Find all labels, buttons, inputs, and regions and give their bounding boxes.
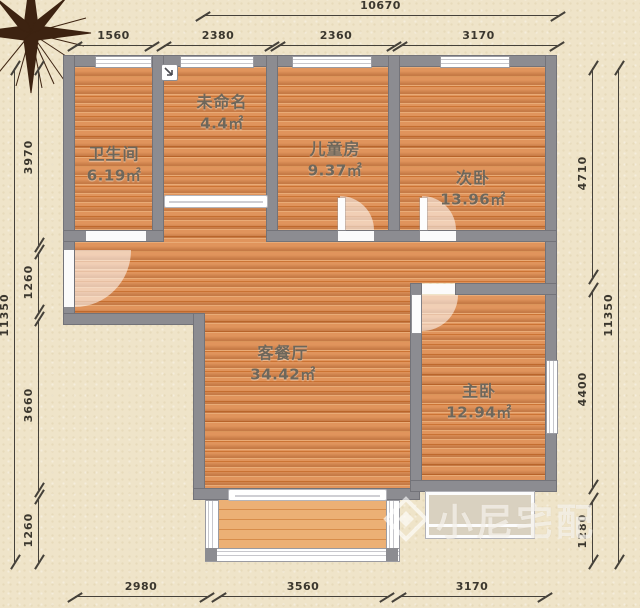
dim-label: 2980 [125,580,158,593]
wall-living-left [193,313,205,500]
room-area: 4.4㎡ [196,114,247,136]
dim-top-seg-1: 1560 [75,45,152,46]
window-master-right [546,360,558,434]
balcony-sliding-door [228,489,387,501]
dim-bottom-seg-3: 3170 [399,596,545,597]
room-name: 未命名 [196,91,247,114]
dim-label: 4710 [576,155,589,190]
dim-bottom-seg-2: 3560 [219,596,387,597]
room-area: 13.96㎡ [440,190,505,212]
dim-label: 11350 [602,293,615,336]
room-floor-hall-nook [410,242,545,283]
dim-label: 10670 [360,0,401,12]
room-name: 客餐厅 [250,342,315,365]
wall-left-step [63,313,205,325]
window-kids-top [292,56,372,68]
window-unnamed-top [180,56,254,68]
room-label-master-bedroom: 主卧 12.94㎡ [446,380,511,425]
wall-divider-kids [388,55,400,242]
dim-label: 1260 [22,265,35,300]
balcony-window-left [205,500,219,550]
floor-plan-page: { "title": "apartment-floor-plan", "room… [0,0,640,608]
dim-left-seg-4: 1260 [38,497,39,562]
room-area: 12.94㎡ [446,403,511,425]
dim-left-seg-2: 1260 [38,252,39,312]
balcony-post-right [386,548,398,561]
room-label-second-bedroom: 次卧 13.96㎡ [440,167,505,212]
wall-master-bottom [410,480,557,492]
dim-bottom-seg-1: 2980 [75,596,207,597]
dim-top-seg-3: 2360 [278,45,394,46]
wall-master-top [455,283,557,295]
wall-divider-bath [152,55,164,242]
dim-label: 11350 [0,293,11,336]
dim-left-seg-3: 3660 [38,319,39,490]
dim-label: 3170 [456,580,489,593]
wall-divider-unnamed [266,55,278,242]
door-opening-entry [64,250,74,307]
kids-door-leaf [338,198,345,230]
dim-label: 4400 [576,371,589,406]
room-area: 6.19㎡ [87,166,142,188]
room-label-living-dining: 客餐厅 34.42㎡ [250,342,315,387]
dim-label: 2380 [202,29,235,42]
wall-under-bedrooms [266,230,557,242]
watermark: 小尼宅配 [383,492,596,546]
balcony-window-bottom [205,548,400,562]
dim-label: 1260 [22,512,35,547]
dim-label: 3170 [462,29,495,42]
window-second-top [440,56,510,68]
room-name: 卫生间 [87,143,142,166]
window-bathroom-top [95,56,152,68]
dim-label: 3660 [22,387,35,422]
room-floor-balcony [217,500,388,548]
dim-label: 1560 [97,29,130,42]
door-opening-bathroom [86,231,146,241]
unnamed-sliding-door [164,195,268,208]
dim-top-total: 10670 [203,15,558,16]
room-label-kids-room: 儿童房 9.37㎡ [308,138,363,183]
door-opening-master [422,284,455,294]
dim-top-seg-4: 3170 [400,45,557,46]
room-area: 34.42㎡ [250,365,315,387]
dim-top-seg-2: 2380 [164,45,272,46]
diamond-logo-icon [383,496,429,542]
second-door-leaf [420,198,427,230]
dim-right-seg-2: 4400 [592,290,593,487]
dim-left-total: 11350 [14,68,15,562]
dim-label: 3970 [22,139,35,174]
dim-label: 2360 [320,29,353,42]
balcony-post-left [205,548,217,561]
dim-left-seg-1: 3970 [38,68,39,245]
room-label-bathroom: 卫生间 6.19㎡ [87,143,142,188]
room-name: 主卧 [446,380,511,403]
dim-right-total: 11350 [618,68,619,562]
dim-label: 3560 [287,580,320,593]
master-door-leaf [412,295,421,333]
watermark-text: 小尼宅配 [436,492,596,546]
room-name: 儿童房 [308,138,363,161]
corner-marker-icon [161,64,178,81]
door-opening-kids [338,231,374,241]
room-area: 9.37㎡ [308,161,363,183]
dim-right-seg-1: 4710 [592,68,593,277]
door-opening-second [420,231,456,241]
room-name: 次卧 [440,167,505,190]
room-label-unnamed: 未命名 4.4㎡ [196,91,247,136]
